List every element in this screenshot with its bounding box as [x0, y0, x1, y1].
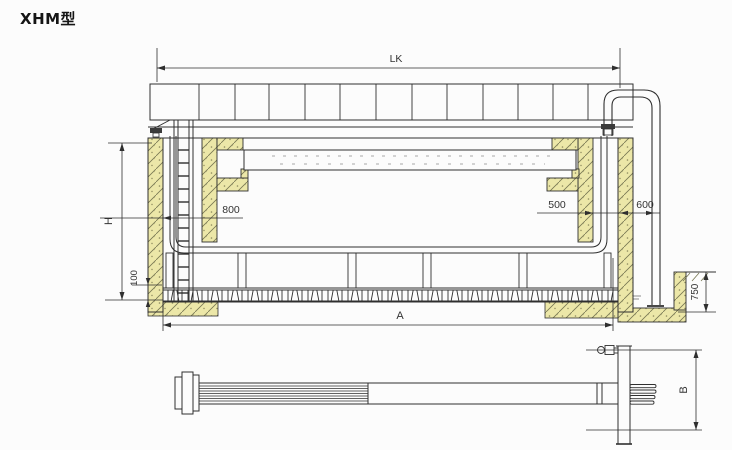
pit-right-wall [674, 272, 686, 310]
dim-label-800: 800 [222, 204, 240, 216]
dim-500-600 [537, 211, 660, 215]
ladder-rungs [178, 150, 189, 293]
dim-lk [157, 48, 620, 88]
cover-left-bevel [153, 120, 170, 129]
pipe-clamp [601, 124, 615, 135]
ladder [174, 93, 193, 302]
ground [148, 302, 633, 318]
xhm-technical-drawing: LK H 100 800 500 600 [0, 0, 732, 450]
wall-anchor-left [150, 128, 162, 137]
dim-label-500: 500 [548, 199, 566, 211]
dim-label-600: 600 [636, 199, 654, 211]
tank-cover [148, 84, 633, 129]
element-side-view [175, 346, 656, 445]
left-wall [148, 138, 163, 312]
riser-pipe [616, 346, 632, 444]
dim-label-b: B [678, 386, 690, 393]
xhm-drawing-page: XHM型 [0, 0, 732, 450]
heating-element [244, 150, 576, 170]
dim-label-750: 750 [690, 283, 701, 300]
element-bracket-left [202, 138, 248, 242]
element-flange [175, 372, 199, 414]
dim-800 [100, 216, 243, 220]
right-wall [618, 138, 633, 312]
dim-label-a: A [396, 310, 404, 322]
return-bend-stubs [630, 385, 656, 405]
tube-bundle [199, 383, 618, 404]
floor-slab [163, 288, 618, 301]
support-posts [166, 253, 611, 288]
dim-label-100: 100 [129, 270, 140, 286]
floor-feet [165, 290, 615, 301]
dim-label-lk: LK [390, 53, 403, 65]
